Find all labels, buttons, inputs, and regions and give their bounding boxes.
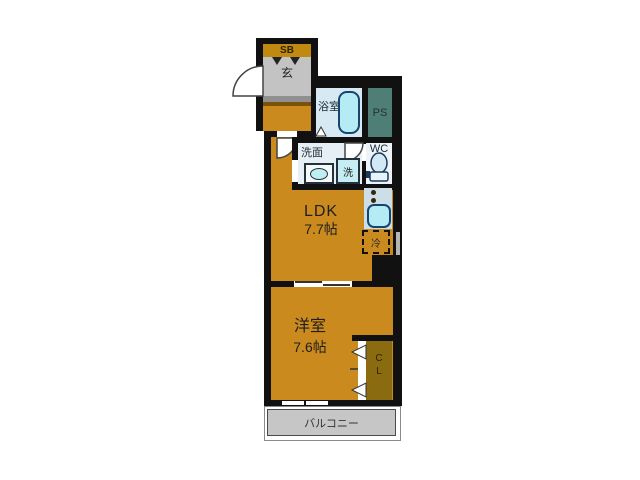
bathroom-door-marker-icon <box>315 126 327 137</box>
hallway-floor <box>263 106 311 131</box>
ldk-size: 7.7帖 <box>271 222 371 237</box>
western-room-label: 洋室 <box>260 318 360 336</box>
shoe-box-label: SB <box>280 45 294 56</box>
sliding-door-icon <box>295 281 322 283</box>
balcony: バルコニー <box>267 409 396 436</box>
washroom-label: 洗面 <box>301 147 323 159</box>
door-stop-markers-icon <box>270 56 304 66</box>
washbasin-bowl <box>310 168 328 180</box>
ldk-label: LDK <box>271 203 371 221</box>
balcony-label: バルコニー <box>304 415 359 431</box>
washroom-door-opening <box>292 160 298 182</box>
wall-hatch <box>396 232 400 256</box>
floor-plan: SB 玄 浴室 PS 洗面 WC <box>0 0 640 480</box>
wall-notch <box>372 255 402 281</box>
pipe-space-label: PS <box>373 107 388 119</box>
bathroom-label: 浴室 <box>318 101 340 113</box>
stove-burner-icon <box>371 198 376 203</box>
western-room-size: 7.6帖 <box>260 340 360 355</box>
entrance-door-swing-icon <box>230 62 266 100</box>
refrigerator-label: 冷 <box>371 235 381 250</box>
washbasin-icon <box>304 163 334 184</box>
pipe-space: PS <box>368 88 392 137</box>
washing-machine-icon: 洗 <box>336 158 360 184</box>
toilet-icon <box>366 151 392 183</box>
sliding-door-icon <box>323 284 350 286</box>
bathtub-icon <box>338 91 360 134</box>
washing-machine-label: 洗 <box>343 164 353 179</box>
window-center-tick <box>304 401 306 405</box>
entrance-label: 玄 <box>263 66 311 82</box>
stove-burner-icon <box>371 190 376 195</box>
closet-label: C L <box>366 352 392 378</box>
